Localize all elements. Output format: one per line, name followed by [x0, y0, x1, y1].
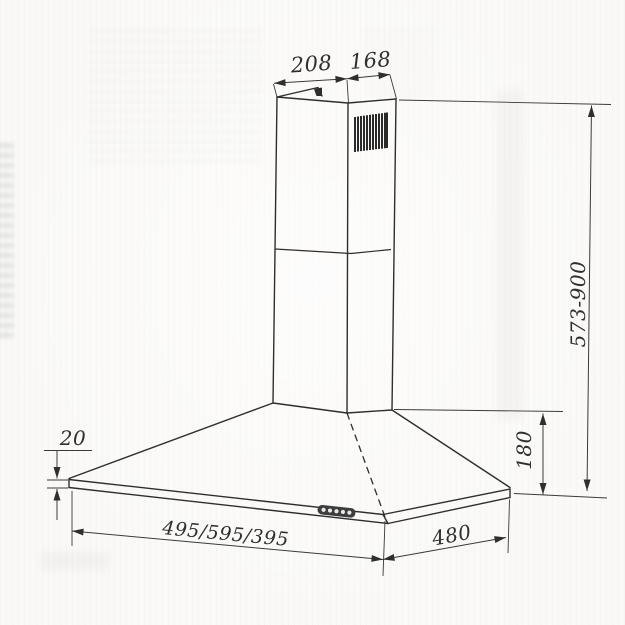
dim-chimney-width: 208 168: [274, 47, 397, 103]
mounting-tab: [277, 88, 322, 98]
range-hood-dimension-diagram: 208 168 573-900 180 20: [0, 0, 625, 625]
dim-label-rim-height: 20: [59, 426, 86, 450]
dim-overall-height: 573-900: [399, 100, 611, 498]
dim-label-width-options: 495/595/395: [160, 517, 290, 551]
dim-label-chimney-side-depth: 168: [349, 47, 392, 74]
canopy-front-corner-edge: [347, 413, 385, 517]
canopy: [69, 403, 510, 524]
scanned-technical-drawing-page: 208 168 573-900 180 20: [0, 0, 625, 625]
dim-canopy-height: 180: [394, 410, 563, 495]
chimney-duct: [273, 88, 396, 414]
bottom-rim: [69, 480, 510, 524]
dim-width-options: 495/595/395: [72, 491, 385, 576]
dim-label-chimney-front-width: 208: [289, 51, 333, 78]
telescopic-seam: [275, 249, 391, 254]
vent-grille: [355, 113, 387, 153]
dim-label-depth: 480: [429, 520, 473, 551]
dim-label-canopy-height: 180: [512, 430, 536, 470]
dim-depth: 480: [383, 500, 510, 560]
dim-label-height-adjustable: 573-900: [566, 261, 590, 348]
